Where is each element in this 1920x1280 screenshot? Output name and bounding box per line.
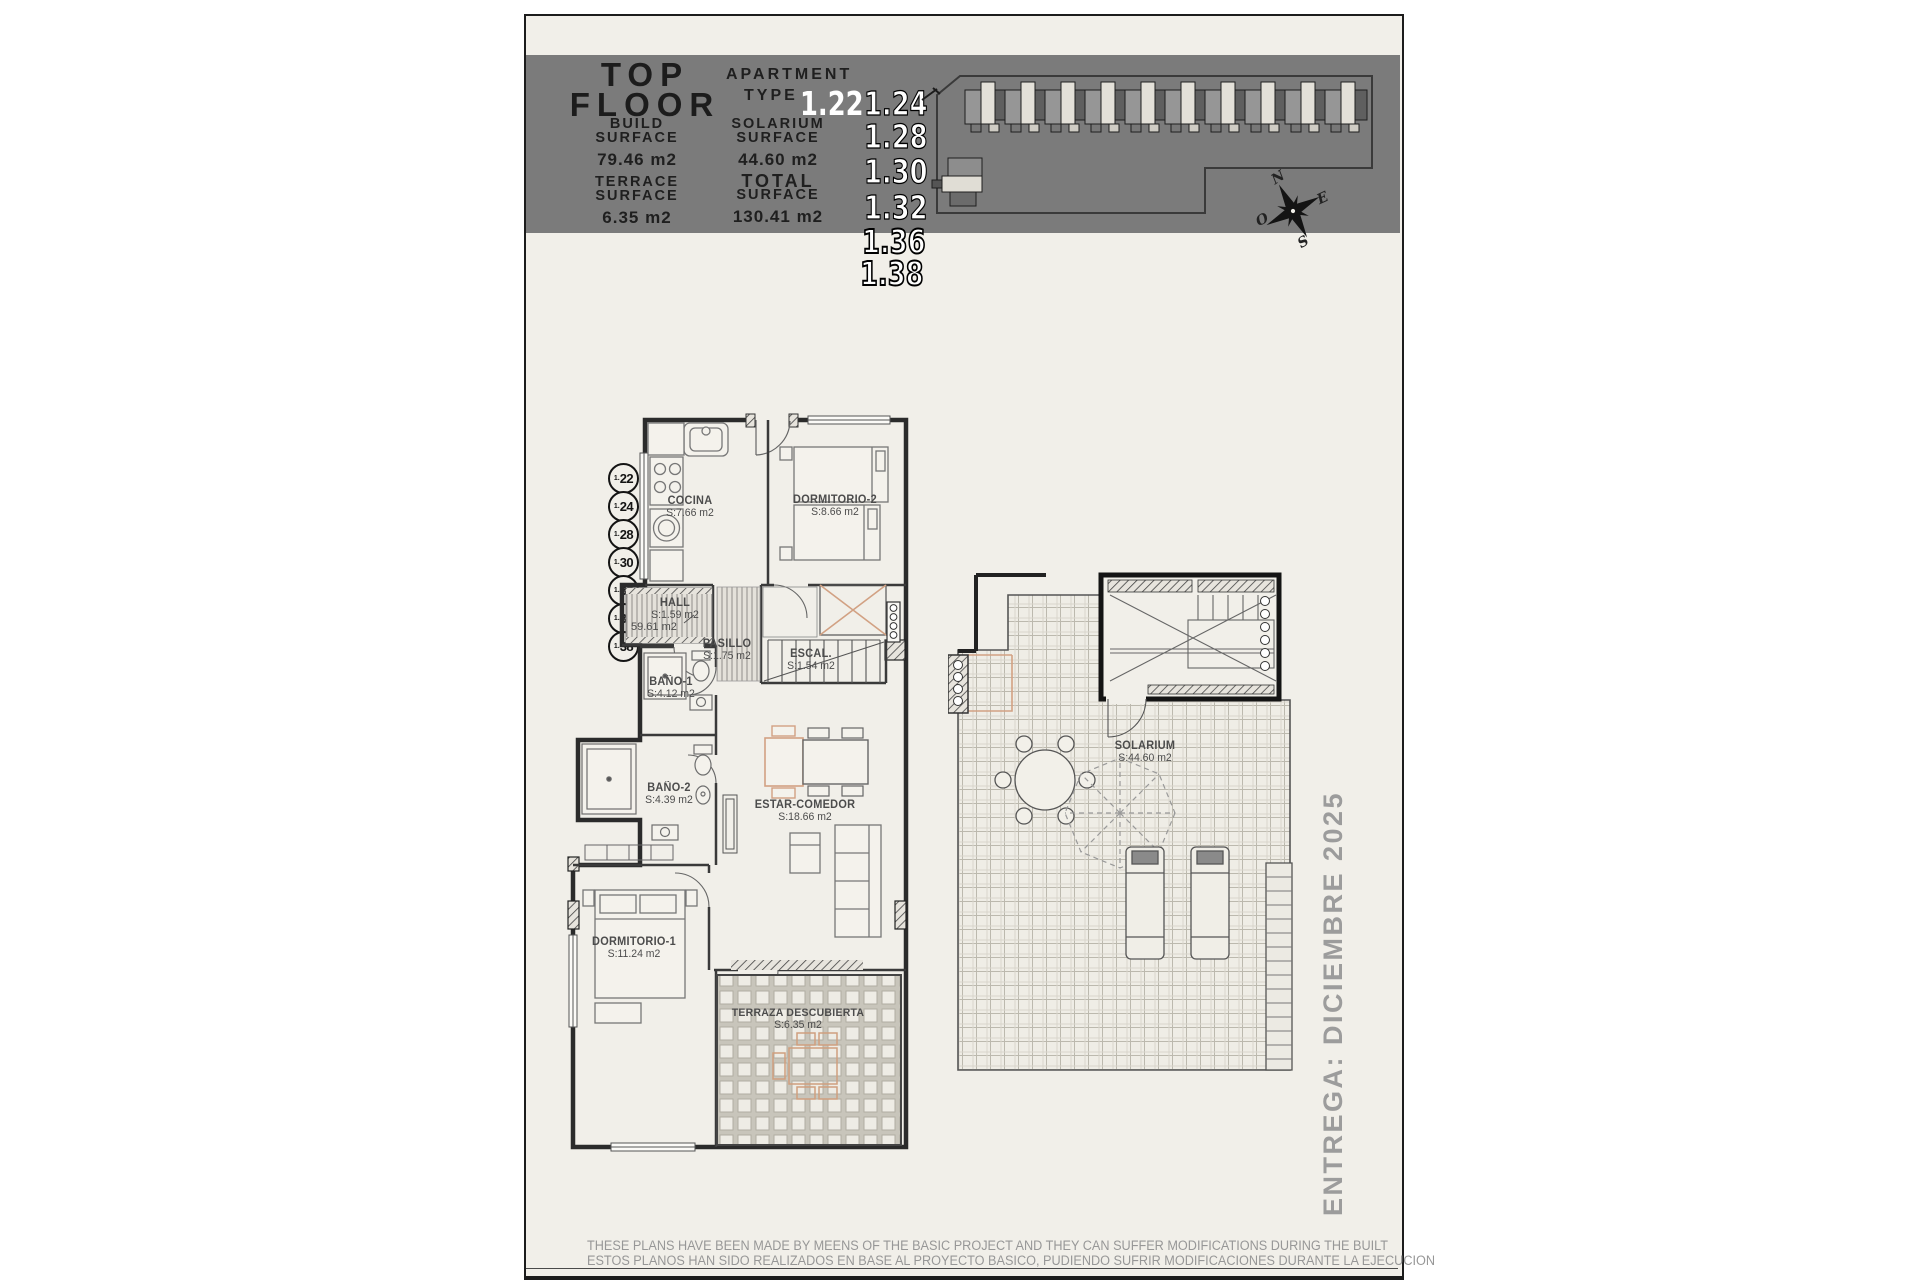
window-marker (887, 602, 900, 642)
terraza-tiles (717, 975, 901, 1145)
room-label-escalera: ESCAL. S:1.54 m2 (780, 648, 843, 672)
terrace-surface-block: TERRACE SURFACE 6.35 m2 (573, 175, 701, 228)
utility-box (948, 655, 968, 713)
delivery-note: ENTREGA: DICIEMBRE 2025 (1318, 772, 1360, 1234)
room-label-terraza: TERRAZA DESCUBIERTA S:6.35 m2 (728, 1007, 869, 1031)
room-label-pasillo: PASILLO S:1.75 m2 (690, 638, 764, 662)
entrance-jamb (789, 414, 798, 427)
footer-divider (526, 1268, 1398, 1269)
site-plan: N E O S (920, 70, 1390, 270)
entrance-jamb (746, 414, 755, 427)
wardrobe (585, 845, 673, 860)
room-label-dormitorio1: DORMITORIO-1 S:11.24 m2 (581, 936, 687, 960)
dining-set (765, 726, 868, 798)
room-label-dormitorio2: DORMITORIO-2 S:8.66 m2 (786, 494, 885, 518)
room-label-cocina: COCINA S:7.66 m2 (643, 495, 738, 519)
solarium-surface-block: SOLARIUM SURFACE 44.60 m2 (714, 117, 842, 170)
room-label-bano1: BAÑO-1 S:4.12 m2 (634, 676, 708, 700)
build-surface-block: BUILD SURFACE 79.46 m2 (573, 117, 701, 170)
sun-lounger (1191, 847, 1229, 959)
pasillo-floor (717, 587, 760, 681)
building-row (965, 82, 1367, 132)
sun-lounger (1126, 847, 1164, 959)
disclaimer: THESE PLANS HAVE BEEN MADE BY MEENS OF T… (563, 1238, 1363, 1268)
type-number-128: 1.28 (864, 117, 928, 156)
type-number-138: 1.38 (860, 254, 924, 293)
side-stair-run (1266, 863, 1292, 1070)
compass-north-label: N (1268, 167, 1289, 189)
entrance-gap (753, 412, 791, 428)
solarium-plan (948, 565, 1304, 1090)
page-title: TOP FLOOR (556, 60, 734, 120)
room-label-estar: ESTAR-COMEDOR S:18.66 m2 (743, 799, 867, 823)
compass-south-label: S (1295, 233, 1312, 252)
shelf (723, 795, 737, 853)
enclosure-door-gap (1106, 693, 1146, 704)
type-number-130: 1.30 (864, 152, 928, 191)
room-label-solarium: SOLARIUM S:44.60 m2 (1102, 740, 1188, 764)
total-surface-block: TOTAL SURFACE 130.41 m2 (714, 174, 842, 227)
terraza-wall-hatch (731, 960, 863, 970)
compass-west-label: O (1253, 210, 1272, 230)
sofa (790, 825, 881, 937)
useful-area-note: 59.61 m2 (631, 621, 677, 633)
room-label-bano2: BAÑO-2 S:4.39 m2 (632, 782, 706, 806)
room-label-hall: HALL S:1.59 m2 (644, 597, 707, 621)
hall-wall-hatch (626, 588, 712, 594)
compass-east-label: E (1314, 189, 1332, 209)
